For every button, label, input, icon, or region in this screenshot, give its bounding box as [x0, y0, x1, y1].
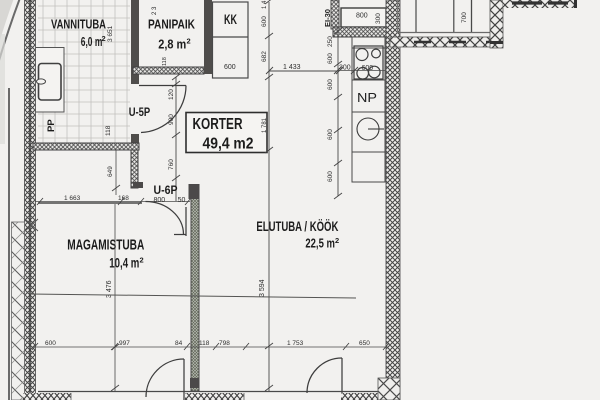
- svg-text:50: 50: [178, 197, 186, 204]
- svg-text:168: 168: [118, 195, 129, 202]
- svg-text:2 3: 2 3: [152, 6, 158, 15]
- svg-text:PP: PP: [46, 119, 57, 132]
- svg-text:997: 997: [119, 340, 130, 347]
- svg-text:1 433: 1 433: [283, 64, 301, 71]
- svg-text:1 4: 1 4: [262, 0, 268, 9]
- svg-text:2: 2: [140, 256, 144, 265]
- svg-text:250: 250: [327, 36, 334, 47]
- svg-text:1 753: 1 753: [287, 340, 304, 347]
- svg-text:1 781: 1 781: [262, 117, 268, 133]
- svg-text:U-6P: U-6P: [154, 185, 178, 197]
- svg-text:300: 300: [375, 13, 382, 24]
- svg-text:2,8 m: 2,8 m: [158, 37, 186, 51]
- svg-text:649: 649: [107, 166, 114, 177]
- svg-text:2: 2: [187, 37, 191, 46]
- svg-text:KK: KK: [224, 12, 237, 27]
- svg-text:2: 2: [335, 236, 339, 245]
- svg-text:800: 800: [356, 13, 368, 20]
- svg-text:600: 600: [327, 53, 334, 64]
- svg-text:49,4 m2: 49,4 m2: [203, 135, 254, 152]
- svg-text:6,0 m: 6,0 m: [81, 35, 103, 49]
- svg-text:682: 682: [261, 51, 268, 62]
- svg-text:3 594: 3 594: [259, 279, 266, 297]
- svg-text:KORTER: KORTER: [193, 116, 243, 133]
- svg-text:120: 120: [168, 89, 175, 100]
- svg-text:118: 118: [105, 125, 112, 136]
- svg-text:ELUTUBA / KÖÖK: ELUTUBA / KÖÖK: [256, 218, 338, 234]
- svg-text:10,4 m: 10,4 m: [109, 255, 139, 271]
- svg-text:VANNITUBA: VANNITUBA: [51, 16, 106, 31]
- svg-text:600: 600: [327, 79, 334, 90]
- svg-text:118: 118: [199, 340, 210, 347]
- svg-text:600: 600: [327, 129, 334, 140]
- svg-text:3 651: 3 651: [107, 25, 114, 42]
- svg-text:798: 798: [219, 340, 230, 347]
- svg-text:EI-30: EI-30: [323, 9, 332, 27]
- svg-text:MAGAMISTUBA: MAGAMISTUBA: [67, 237, 144, 253]
- svg-text:900: 900: [168, 114, 175, 125]
- svg-text:U-5P: U-5P: [129, 107, 151, 119]
- svg-text:700: 700: [461, 12, 468, 23]
- svg-text:600: 600: [45, 340, 56, 347]
- svg-text:600: 600: [261, 16, 268, 27]
- svg-text:22,5 m: 22,5 m: [305, 237, 335, 251]
- svg-text:PANIPAIK: PANIPAIK: [148, 16, 195, 31]
- svg-text:2: 2: [102, 34, 106, 43]
- svg-text:118: 118: [162, 57, 168, 66]
- svg-text:600: 600: [327, 171, 334, 182]
- svg-text:84: 84: [175, 340, 183, 347]
- svg-text:600: 600: [224, 64, 236, 71]
- svg-text:NP: NP: [357, 90, 377, 105]
- svg-text:760: 760: [168, 159, 175, 170]
- svg-text:650: 650: [359, 340, 370, 347]
- svg-text:1 663: 1 663: [64, 195, 81, 202]
